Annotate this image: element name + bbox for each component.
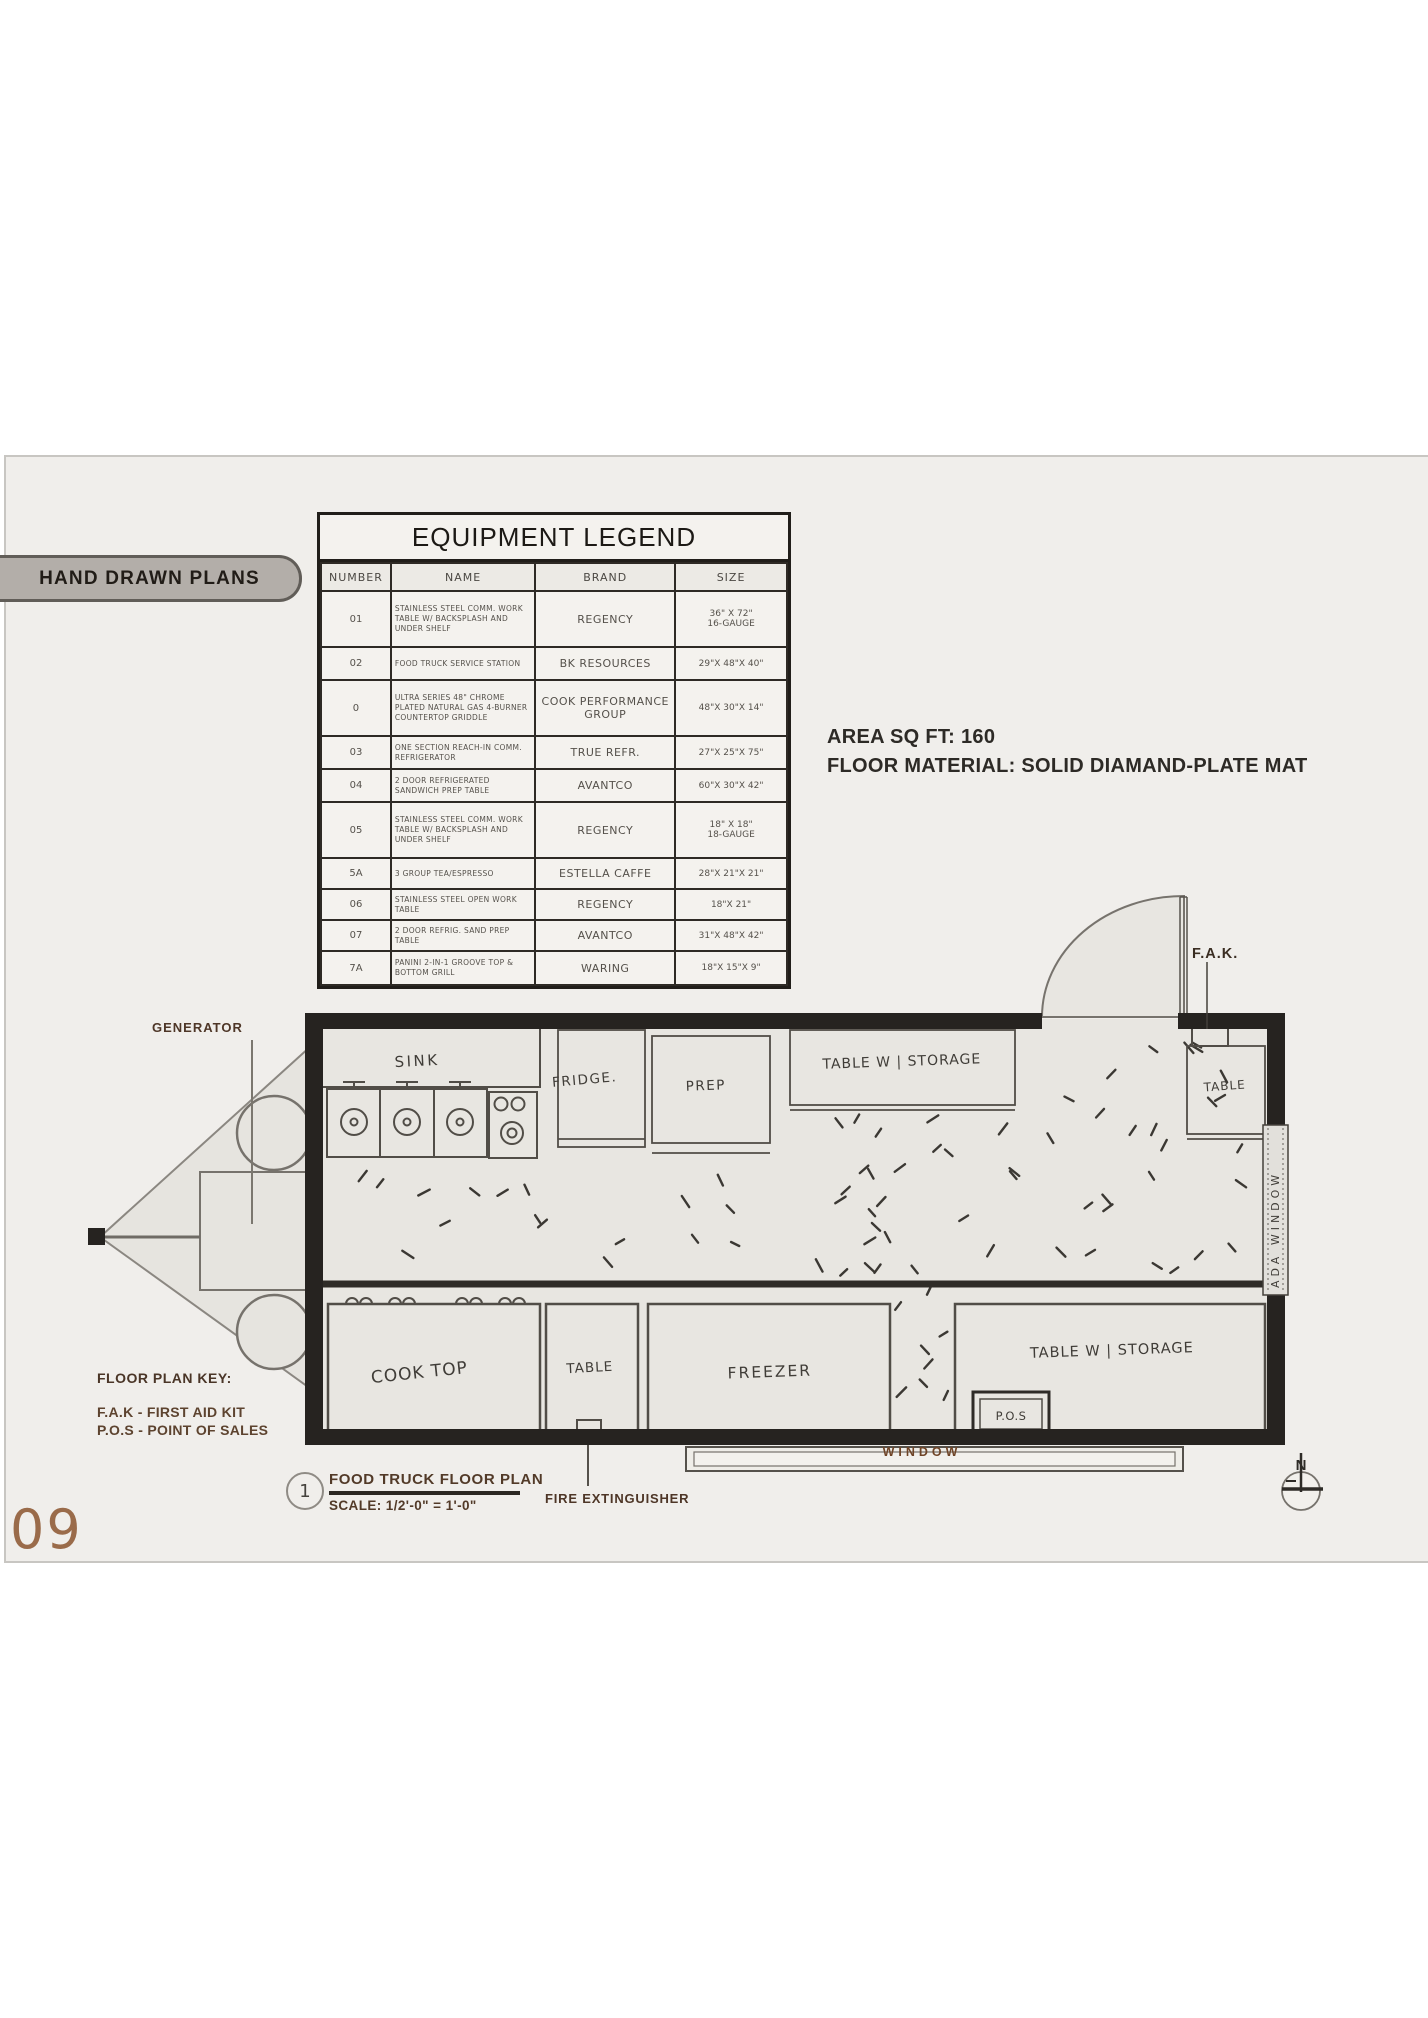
legend-cell-size: 28"X 21"X 21" xyxy=(675,858,787,889)
equipment-legend: EQUIPMENT LEGEND NUMBER NAME BRAND SIZE … xyxy=(317,512,791,989)
ada-window-label: ADA WINDOW xyxy=(1269,1171,1282,1288)
sink-label: SINK xyxy=(394,1051,440,1071)
legend-col-size: SIZE xyxy=(675,563,787,591)
legend-cell-name: 3 GROUP TEA/ESPRESSO xyxy=(391,858,535,889)
legend-cell-brand: REGENCY xyxy=(535,802,675,858)
generator-box xyxy=(200,1172,314,1290)
equipment-legend-title: EQUIPMENT LEGEND xyxy=(320,515,788,562)
trailer-hitch xyxy=(88,1046,314,1389)
legend-header-row: NUMBER NAME BRAND SIZE xyxy=(321,563,787,591)
page-number: 09 xyxy=(10,1498,83,1561)
drawing-title-block: FOOD TRUCK FLOOR PLAN SCALE: 1/2'-0" = 1… xyxy=(329,1471,543,1513)
legend-row: 02FOOD TRUCK SERVICE STATIONBK RESOURCES… xyxy=(321,647,787,680)
legend-cell-brand: WARING xyxy=(535,951,675,985)
legend-cell-size: 27"X 25"X 75" xyxy=(675,736,787,769)
window-label: WINDOW xyxy=(883,1445,962,1459)
fak-label: F.A.K. xyxy=(1192,946,1238,962)
area-sqft-text: AREA SQ FT: 160 xyxy=(827,723,1308,752)
legend-cell-name: ULTRA SERIES 48" CHROME PLATED NATURAL G… xyxy=(391,680,535,736)
legend-cell-size: 36" X 72" 16-GAUGE xyxy=(675,591,787,647)
pos-label: P.O.S xyxy=(996,1409,1027,1423)
fire-extinguisher-label: FIRE EXTINGUISHER xyxy=(545,1491,689,1506)
drawing-number: 1 xyxy=(299,1481,310,1502)
legend-cell-name: STAINLESS STEEL COMM. WORK TABLE W/ BACK… xyxy=(391,591,535,647)
legend-row: 042 DOOR REFRIGERATED SANDWICH PREP TABL… xyxy=(321,769,787,802)
legend-cell-name: 2 DOOR REFRIG. SAND PREP TABLE xyxy=(391,920,535,951)
drawing-title: FOOD TRUCK FLOOR PLAN xyxy=(329,1471,543,1488)
floor-plan-drawing: ADA WINDOW N GENERATOR F.A.K. WINDOW FIR… xyxy=(0,0,1428,2018)
north-arrow: N xyxy=(1282,1453,1323,1510)
section-tab: HAND DRAWN PLANS xyxy=(0,555,302,602)
legend-row: 03ONE SECTION REACH-IN COMM. REFRIGERATO… xyxy=(321,736,787,769)
legend-row: 01STAINLESS STEEL COMM. WORK TABLE W/ BA… xyxy=(321,591,787,647)
legend-col-number: NUMBER xyxy=(321,563,391,591)
legend-row: 05STAINLESS STEEL COMM. WORK TABLE W/ BA… xyxy=(321,802,787,858)
north-label: N xyxy=(1296,1457,1307,1474)
legend-cell-brand: TRUE REFR. xyxy=(535,736,675,769)
legend-cell-size: 18" X 18" 18-GAUGE xyxy=(675,802,787,858)
legend-cell-name: STAINLESS STEEL OPEN WORK TABLE xyxy=(391,889,535,920)
legend-cell-name: ONE SECTION REACH-IN COMM. REFRIGERATOR xyxy=(391,736,535,769)
legend-row: 7APANINI 2-IN-1 GROOVE TOP & BOTTOM GRIL… xyxy=(321,951,787,985)
legend-col-brand: BRAND xyxy=(535,563,675,591)
legend-row: 072 DOOR REFRIG. SAND PREP TABLEAVANTCO3… xyxy=(321,920,787,951)
legend-row: 0ULTRA SERIES 48" CHROME PLATED NATURAL … xyxy=(321,680,787,736)
generator-label: GENERATOR xyxy=(152,1020,243,1035)
legend-cell-size: 29"X 48"X 40" xyxy=(675,647,787,680)
title-underline xyxy=(329,1491,520,1495)
legend-cell-number: 03 xyxy=(321,736,391,769)
equipment-legend-table: NUMBER NAME BRAND SIZE 01STAINLESS STEEL… xyxy=(320,562,788,986)
legend-cell-brand: AVANTCO xyxy=(535,769,675,802)
freezer-label: FREEZER xyxy=(727,1362,812,1383)
legend-cell-number: 06 xyxy=(321,889,391,920)
legend-cell-name: STAINLESS STEEL COMM. WORK TABLE W/ BACK… xyxy=(391,802,535,858)
table-bottom-label: TABLE xyxy=(565,1359,614,1377)
legend-cell-size: 48"X 30"X 14" xyxy=(675,680,787,736)
floor-plan-key-heading: FLOOR PLAN KEY: xyxy=(97,1370,268,1386)
legend-cell-size: 31"X 48"X 42" xyxy=(675,920,787,951)
legend-col-name: NAME xyxy=(391,563,535,591)
legend-cell-number: 04 xyxy=(321,769,391,802)
legend-cell-size: 60"X 30"X 42" xyxy=(675,769,787,802)
legend-row: 06STAINLESS STEEL OPEN WORK TABLEREGENCY… xyxy=(321,889,787,920)
ada-window: ADA WINDOW xyxy=(1263,1125,1288,1295)
drawing-number-bubble: 1 xyxy=(286,1472,324,1510)
drawing-scale: SCALE: 1/2'-0" = 1'-0" xyxy=(329,1498,543,1513)
prep-label: PREP xyxy=(685,1077,726,1094)
floor-material-text: FLOOR MATERIAL: SOLID DIAMAND-PLATE MAT xyxy=(827,752,1308,781)
legend-cell-number: 01 xyxy=(321,591,391,647)
legend-cell-number: 05 xyxy=(321,802,391,858)
legend-cell-name: FOOD TRUCK SERVICE STATION xyxy=(391,647,535,680)
hitch-coupler xyxy=(88,1228,105,1245)
legend-cell-number: 02 xyxy=(321,647,391,680)
legend-cell-size: 18"X 21" xyxy=(675,889,787,920)
legend-cell-number: 5A xyxy=(321,858,391,889)
legend-cell-number: 0 xyxy=(321,680,391,736)
legend-cell-size: 18"X 15"X 9" xyxy=(675,951,787,985)
key-item-pos: P.O.S - POINT OF SALES xyxy=(97,1421,268,1439)
legend-cell-brand: REGENCY xyxy=(535,591,675,647)
legend-cell-brand: ESTELLA CAFFE xyxy=(535,858,675,889)
table-top-right-label: TABLE xyxy=(1202,1078,1246,1095)
legend-cell-brand: AVANTCO xyxy=(535,920,675,951)
wheel-bottom xyxy=(237,1295,311,1369)
legend-cell-brand: COOK PERFORMANCE GROUP xyxy=(535,680,675,736)
plan-specs: AREA SQ FT: 160 FLOOR MATERIAL: SOLID DI… xyxy=(827,723,1308,781)
floor-plan-key: FLOOR PLAN KEY: F.A.K - FIRST AID KIT P.… xyxy=(97,1370,268,1439)
section-tab-label: HAND DRAWN PLANS xyxy=(39,568,260,590)
legend-cell-number: 07 xyxy=(321,920,391,951)
legend-row: 5A3 GROUP TEA/ESPRESSOESTELLA CAFFE28"X … xyxy=(321,858,787,889)
legend-cell-brand: REGENCY xyxy=(535,889,675,920)
legend-cell-name: 2 DOOR REFRIGERATED SANDWICH PREP TABLE xyxy=(391,769,535,802)
door-swing xyxy=(1042,896,1187,1017)
legend-cell-name: PANINI 2-IN-1 GROOVE TOP & BOTTOM GRILL xyxy=(391,951,535,985)
key-item-fak: F.A.K - FIRST AID KIT xyxy=(97,1403,268,1421)
legend-cell-brand: BK RESOURCES xyxy=(535,647,675,680)
wheel-top xyxy=(237,1096,311,1170)
legend-cell-number: 7A xyxy=(321,951,391,985)
